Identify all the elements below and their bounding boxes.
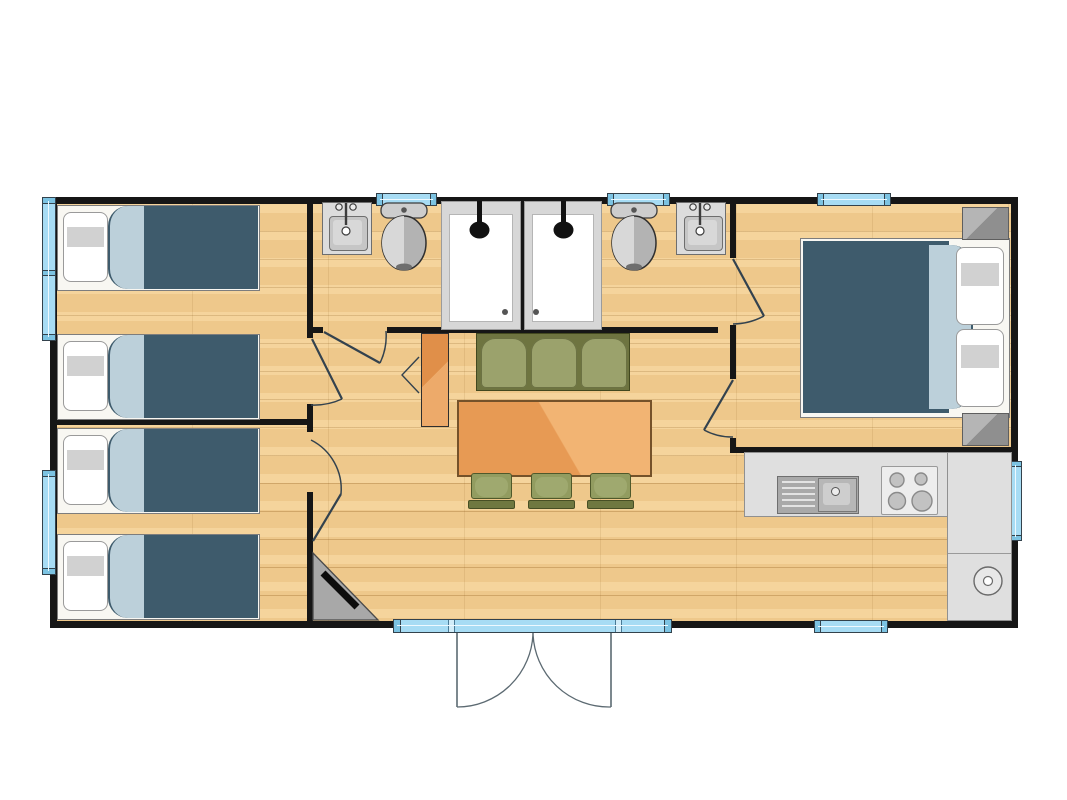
wall-bathroom-bottom-a bbox=[307, 327, 323, 333]
window-entrance-bay bbox=[393, 619, 672, 633]
sofa-cushion bbox=[481, 338, 527, 388]
wall-right bbox=[1011, 197, 1018, 628]
washbasin-left bbox=[322, 202, 372, 255]
sideboard bbox=[421, 333, 449, 427]
single-bed-4 bbox=[57, 534, 260, 620]
dining-chair-2 bbox=[531, 473, 572, 509]
drainboard bbox=[782, 481, 815, 508]
dining-table bbox=[457, 400, 652, 477]
pillow bbox=[63, 341, 108, 411]
wall-master-a bbox=[730, 204, 736, 258]
pillow bbox=[63, 212, 108, 282]
sofa-cushion bbox=[581, 338, 627, 388]
sofa-cushion bbox=[531, 338, 577, 388]
shower-tray bbox=[449, 214, 513, 322]
kitchen-sink bbox=[777, 476, 859, 514]
single-bed-1 bbox=[57, 205, 260, 291]
washbasin-right bbox=[676, 202, 726, 255]
nightstand-top bbox=[962, 207, 1009, 240]
nightstand-bottom bbox=[962, 413, 1009, 446]
shower-cabin-right bbox=[524, 201, 602, 330]
pillow bbox=[63, 435, 108, 505]
floor-plan-canvas bbox=[0, 0, 1067, 800]
pillow bbox=[956, 329, 1004, 407]
tap-icon bbox=[831, 487, 840, 496]
window-left-2 bbox=[42, 470, 56, 575]
window-bathroom-right bbox=[607, 193, 670, 206]
worktop-divider bbox=[948, 553, 1011, 554]
sofa bbox=[476, 333, 630, 391]
window-kitchen-bottom bbox=[814, 620, 888, 633]
shower-cabin-left bbox=[441, 201, 521, 330]
wall-bedrooms-c bbox=[307, 492, 313, 621]
entrance-double-door bbox=[457, 633, 611, 707]
entrance-mullion-left bbox=[448, 620, 455, 632]
pillow bbox=[956, 247, 1004, 325]
basin bbox=[329, 216, 368, 251]
window-master-bedroom bbox=[817, 193, 891, 206]
wall-master-b bbox=[730, 325, 736, 379]
wall-bedrooms-b bbox=[307, 404, 313, 432]
wall-bedrooms-a bbox=[307, 204, 313, 338]
double-bed bbox=[800, 238, 1010, 418]
pillow bbox=[63, 541, 108, 611]
single-bed-2 bbox=[57, 334, 260, 420]
dining-chair-3 bbox=[590, 473, 631, 509]
window-left-1 bbox=[42, 197, 56, 341]
basin bbox=[684, 216, 723, 251]
entrance-mullion-right bbox=[615, 620, 622, 632]
kitchen-worktop-right bbox=[947, 452, 1012, 621]
window-bathroom-left bbox=[376, 193, 437, 206]
single-bed-3 bbox=[57, 428, 260, 514]
dining-chair-1 bbox=[471, 473, 512, 509]
hob bbox=[881, 466, 938, 515]
shower-tray bbox=[532, 214, 594, 322]
